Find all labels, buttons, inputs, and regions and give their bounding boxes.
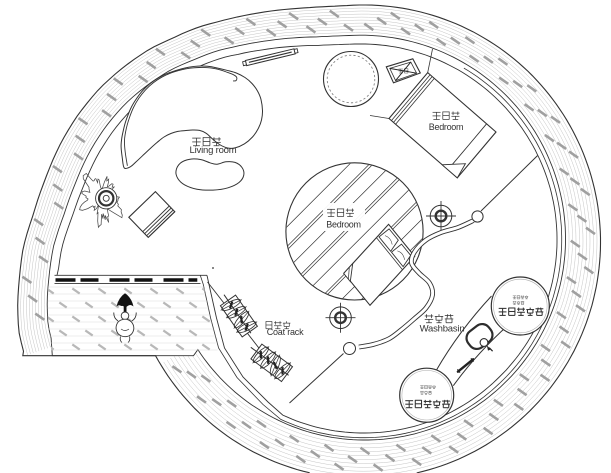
svg-text:Coat rack: Coat rack bbox=[267, 327, 304, 337]
svg-text:Washbasin: Washbasin bbox=[420, 324, 465, 335]
svg-text:Bedroom: Bedroom bbox=[429, 122, 463, 132]
svg-text:Bedroom: Bedroom bbox=[326, 220, 360, 230]
svg-text:Living room: Living room bbox=[190, 145, 237, 156]
